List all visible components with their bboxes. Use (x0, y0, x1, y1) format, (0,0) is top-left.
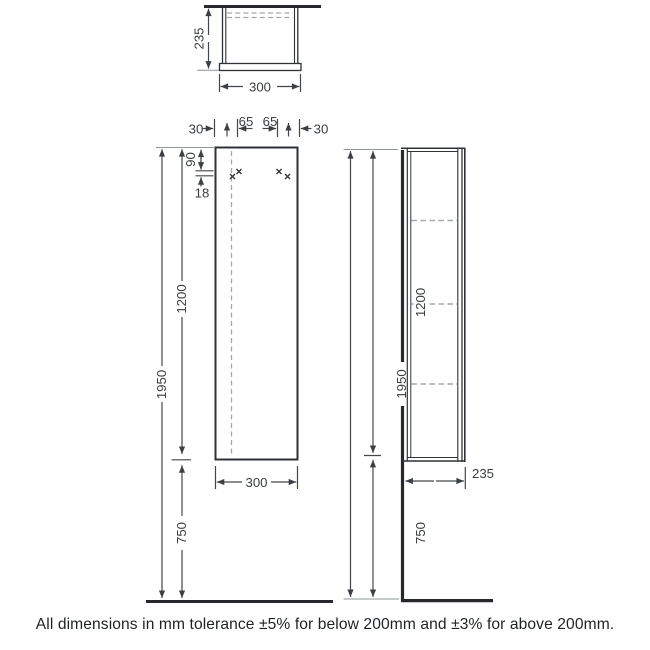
dim-label-offset-right: 30 (314, 122, 329, 137)
dim-label-side-floor-clearance: 750 (413, 522, 428, 544)
dim-label-top-depth: 235 (192, 27, 207, 49)
dim-label-front-width: 300 (245, 475, 267, 490)
dim-label-top-width: 300 (249, 80, 271, 95)
dim-label-floor-clearance: 750 (174, 522, 189, 544)
side-height-dimensions (344, 150, 400, 600)
dim-label-spacing-left: 65 (239, 114, 254, 129)
cabinet-front-outline (216, 148, 298, 460)
cabinet-dimension-drawing: 235 300 30 65 65 (0, 0, 650, 650)
dim-label-hole-from-top: 90 (183, 152, 198, 167)
dim-label-side-cabinet-height: 1200 (413, 288, 428, 317)
top-dimension-chain: 30 65 65 30 (189, 114, 329, 137)
side-depth-dimension: 235 (405, 466, 494, 489)
side-view: 1950 1200 750 (344, 148, 495, 601)
technical-drawing-canvas: 235 300 30 65 65 (0, 0, 650, 650)
top-view: 235 300 (192, 7, 322, 95)
dim-label-spacing-right: 65 (263, 114, 278, 129)
dim-label-hole-row-gap: 18 (195, 186, 210, 201)
dim-label-offset-left: 30 (189, 122, 204, 137)
front-view: 30 65 65 30 90 18 1950 (146, 114, 333, 602)
front-width-dimension: 300 (216, 466, 298, 490)
tolerance-note: All dimensions in mm tolerance ±5% for b… (0, 616, 650, 634)
door-slab (220, 64, 302, 71)
dim-label-cabinet-height: 1200 (174, 284, 189, 313)
dim-label-side-depth: 235 (472, 466, 494, 481)
hole-height-dimensions: 90 18 (183, 150, 214, 201)
front-height-dimensions: 1950 1200 750 (154, 148, 214, 599)
dim-label-mounting-height: 1950 (154, 370, 169, 399)
